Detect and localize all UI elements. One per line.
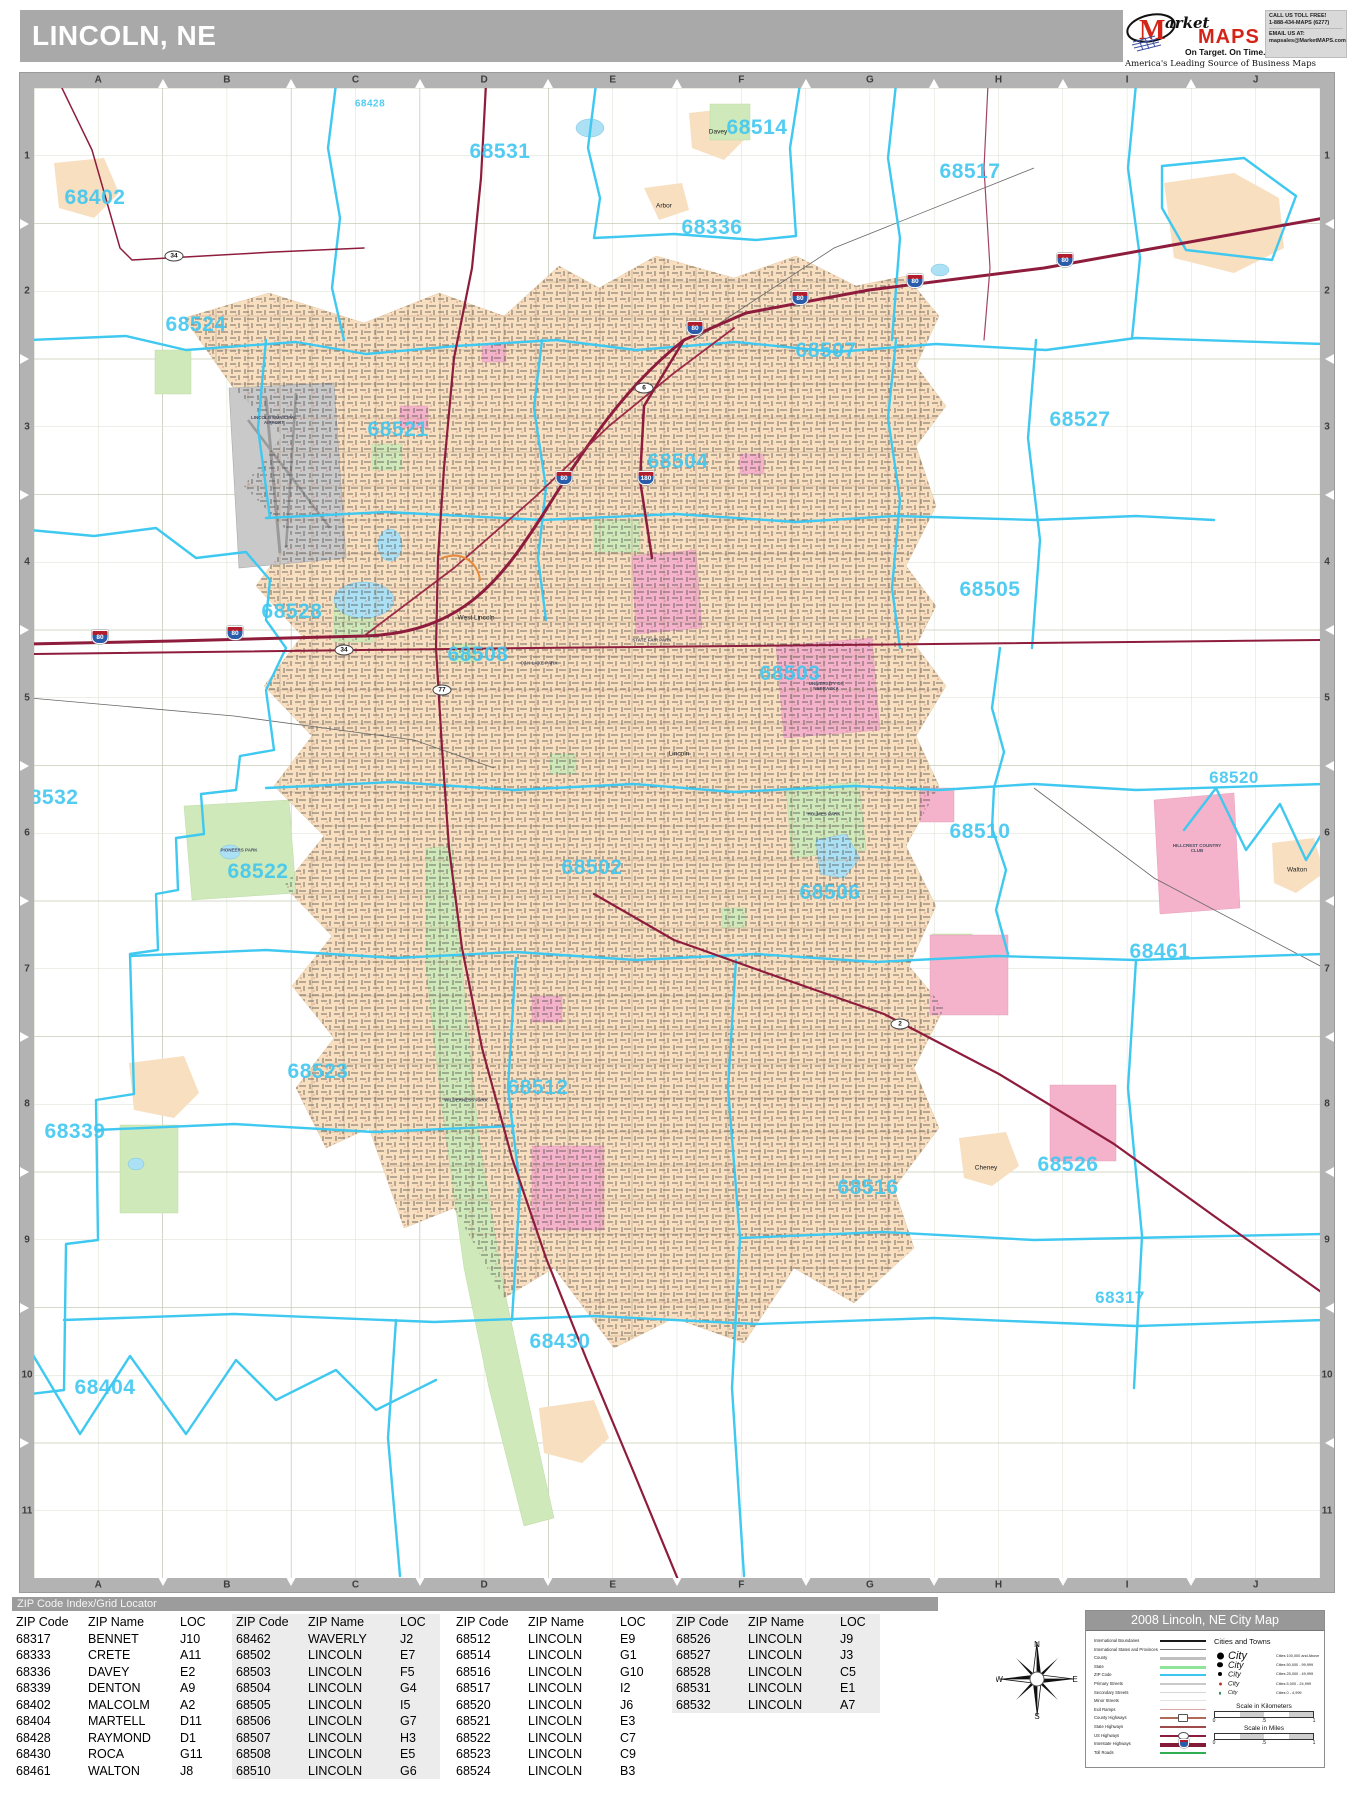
zip-index-row-68512: 68512LINCOLNE9 [452, 1631, 660, 1648]
grid-notch [1325, 1167, 1334, 1177]
city-class-row: CityCities 25,000 - 49,999 [1216, 1670, 1324, 1679]
city-range: Cities 0 - 4,999 [1276, 1691, 1302, 1695]
interstate-shield-80: 80 [792, 291, 809, 305]
town-label-davey: Davey [709, 129, 727, 136]
zip-label-68336: 68336 [682, 216, 743, 240]
route-badge-34: 34 [335, 645, 354, 656]
zip-label-68532: 68532 [34, 786, 78, 810]
zip-index-row-68506: 68506LINCOLNG7 [232, 1713, 440, 1730]
legend-item-label: State [1094, 1664, 1104, 1669]
grid-notch [286, 1577, 296, 1586]
col-header-zip-code: ZIP Code [16, 1614, 88, 1631]
town-label-walton: Walton [1287, 867, 1307, 874]
legend-item-state-highways: State Highways [1086, 1723, 1214, 1731]
zip-label-68317: 68317 [1095, 1288, 1145, 1308]
grid-notch [20, 896, 29, 906]
grid-letter-F: F [738, 75, 744, 86]
grid-letter-H: H [995, 75, 1002, 86]
zip-label-68521: 68521 [368, 418, 429, 442]
legend-item-county-highways: County Highways [1086, 1714, 1214, 1722]
city-class-row: CityCities 5,000 - 24,999 [1216, 1679, 1324, 1688]
legend-item-interstate-highways: Interstate Highways [1086, 1740, 1214, 1748]
scale-ticks: 0.51 [1214, 1718, 1314, 1724]
grid-letter-F: F [738, 1580, 744, 1591]
zip-label-68528: 68528 [262, 600, 323, 624]
zip-label-68402: 68402 [65, 186, 126, 210]
zip-label-68507: 68507 [796, 339, 857, 363]
city-class-row: CityCities 50,000 - 99,999 [1216, 1660, 1324, 1669]
legend-item-county: County [1086, 1654, 1214, 1662]
col-header-loc: LOC [620, 1614, 656, 1631]
contact-email: mapsales@MarketMAPS.com [1269, 38, 1343, 45]
marketmaps-logo: M arket MAPS On Target. On Time. America… [1125, 4, 1347, 70]
legend-item-label: US Highways [1094, 1733, 1119, 1738]
zip-label-68531: 68531 [470, 140, 531, 164]
col-header-zip-name: ZIP Name [308, 1614, 400, 1631]
grid-notch [1325, 896, 1334, 906]
grid-letter-B: B [223, 75, 230, 86]
grid-number-10: 10 [21, 1370, 32, 1381]
zip-index-group-4: ZIP CodeZIP NameLOC68526LINCOLNJ968527LI… [672, 1614, 880, 1713]
grid-letter-I: I [1126, 1580, 1129, 1591]
grid-number-5: 5 [24, 692, 30, 703]
legend-item-label: International Boundaries [1094, 1638, 1139, 1643]
zip-index-row-68520: 68520LINCOLNJ6 [452, 1697, 660, 1714]
grid-letter-C: C [352, 75, 359, 86]
zip-index-group-1: ZIP CodeZIP NameLOC68317BENNETJ1068333CR… [12, 1614, 220, 1779]
zip-label-68523: 68523 [288, 1060, 349, 1084]
legend-item-secondary-streets: Secondary Streets [1086, 1689, 1214, 1697]
grid-notch [1186, 1577, 1196, 1586]
zip-index-row-68336: 68336DAVEYE2 [12, 1664, 220, 1681]
grid-number-11: 11 [22, 1505, 33, 1516]
scale-tick: .5 [1262, 1740, 1266, 1746]
legend-line-sample [1160, 1657, 1206, 1660]
grid-notch [801, 79, 811, 88]
legend-item-minor-streets: Minor Streets [1086, 1697, 1214, 1705]
legend-item-label: Exit Ramps [1094, 1707, 1115, 1712]
zip-index-row-68532: 68532LINCOLNA7 [672, 1697, 880, 1714]
col-header-zip-name: ZIP Name [88, 1614, 180, 1631]
legend-item-label: County Highways [1094, 1715, 1127, 1720]
city-dot [1218, 1672, 1222, 1676]
route-badge-77: 77 [433, 685, 452, 696]
col-header-loc: LOC [180, 1614, 216, 1631]
zip-index-row-68402: 68402MALCOLMA2 [12, 1697, 220, 1714]
scale-tick: .5 [1262, 1718, 1266, 1724]
legend-item-toll-roads: Toll Roads [1086, 1749, 1214, 1757]
grid-notch [20, 1438, 29, 1448]
grid-notch [158, 79, 168, 88]
poi-label: STATE FAIR PARK [626, 638, 678, 643]
zip-label-68505: 68505 [960, 578, 1021, 602]
scale-title: Scale in Kilometers [1214, 1703, 1314, 1710]
interstate-shield-80: 80 [227, 626, 244, 640]
grid-notch [20, 1167, 29, 1177]
col-header-zip-code: ZIP Code [236, 1614, 308, 1631]
grid-letter-J: J [1253, 75, 1259, 86]
zip-label-68461: 68461 [1130, 940, 1191, 964]
grid-notch [672, 79, 682, 88]
legend-item-exit-ramps: Exit Ramps [1086, 1706, 1214, 1714]
grid-number-5: 5 [1324, 692, 1330, 703]
legend-item-international-boundaries: International Boundaries [1086, 1637, 1214, 1645]
poi-label: PIONEERS PARK [213, 848, 265, 853]
grid-notch [1325, 625, 1334, 635]
legend-item-label: County [1094, 1655, 1107, 1660]
zip-label-68527: 68527 [1050, 408, 1111, 432]
scale-tick: 1 [1313, 1740, 1316, 1746]
map-canvas: 6842868531685146851768402683366852468507… [34, 88, 1320, 1578]
legend-line-sample [1160, 1649, 1206, 1650]
grid-bar-bottom: ABCDEFGHIJ [20, 1577, 1334, 1592]
grid-notch [20, 761, 29, 771]
city-dot [1217, 1652, 1224, 1659]
grid-letter-E: E [609, 75, 616, 86]
interstate-shield-badge [1179, 1739, 1189, 1748]
grid-notch [1325, 490, 1334, 500]
legend-item-state: State [1086, 1663, 1214, 1671]
legend-line-sample [1160, 1709, 1206, 1710]
zip-label-68520: 68520 [1209, 768, 1259, 788]
zip-index-row-68317: 68317BENNETJ10 [12, 1631, 220, 1648]
interstate-shield-180: 180 [638, 471, 655, 485]
cities-and-towns-header: Cities and Towns [1214, 1637, 1314, 1646]
city-dot [1219, 1692, 1222, 1695]
legend-line-sample [1160, 1692, 1206, 1693]
logo-tagline: On Target. On Time. [1185, 47, 1265, 57]
grid-notch [1325, 1438, 1334, 1448]
svg-text:S: S [1034, 1712, 1039, 1720]
scale-bar [1214, 1733, 1314, 1740]
scale-tick: 1 [1313, 1718, 1316, 1724]
grid-notch [543, 79, 553, 88]
zip-label-68339: 68339 [45, 1120, 106, 1144]
grid-number-8: 8 [1324, 1099, 1330, 1110]
town-label-lincoln: Lincoln [669, 751, 690, 758]
map-label-layer: 6842868531685146851768402683366852468507… [34, 88, 1320, 1578]
legend-line-sample [1160, 1700, 1206, 1701]
zip-index-row-68504: 68504LINCOLNG4 [232, 1680, 440, 1697]
scale-tick: 0 [1213, 1740, 1216, 1746]
logo-maps-text: MAPS [1198, 26, 1260, 49]
grid-notch [20, 1032, 29, 1042]
legend-item-label: Primary Streets [1094, 1681, 1123, 1686]
grid-letter-E: E [609, 1580, 616, 1591]
zip-index-row-68428: 68428RAYMONDD1 [12, 1730, 220, 1747]
grid-bar-left: 1234567891011 [20, 73, 34, 1592]
grid-letter-I: I [1126, 75, 1129, 86]
zip-index-row-68527: 68527LINCOLNJ3 [672, 1647, 880, 1664]
grid-number-1: 1 [24, 150, 30, 161]
zip-index-row-68503: 68503LINCOLNF5 [232, 1664, 440, 1681]
legend-item-label: ZIP Code [1094, 1672, 1112, 1677]
zip-label-68504: 68504 [648, 450, 709, 474]
city-word: City [1228, 1670, 1241, 1679]
legend-item-label: State Highways [1094, 1724, 1123, 1729]
grid-number-4: 4 [1324, 557, 1330, 568]
legend-box: 2008 Lincoln, NE City Map International … [1085, 1610, 1325, 1768]
grid-number-7: 7 [1324, 963, 1330, 974]
route-badge-6: 6 [635, 383, 654, 394]
scale-kilometers: Scale in Kilometers0.51 [1214, 1703, 1314, 1724]
grid-notch [158, 1577, 168, 1586]
route-badge-34: 34 [165, 251, 184, 262]
interstate-shield-80: 80 [907, 274, 924, 288]
zip-index-row-68507: 68507LINCOLNH3 [232, 1730, 440, 1747]
city-range: Cities 5,000 - 24,999 [1276, 1682, 1311, 1686]
zip-label-68404: 68404 [75, 1376, 136, 1400]
zip-index-row-68461: 68461WALTONJ8 [12, 1763, 220, 1780]
zip-label-68524: 68524 [166, 313, 227, 337]
grid-number-8: 8 [24, 1099, 30, 1110]
grid-number-3: 3 [1324, 421, 1330, 432]
poi-label: HOLMES PARK [798, 812, 850, 817]
city-dot [1219, 1682, 1222, 1685]
grid-notch [1325, 219, 1334, 229]
grid-notch [1186, 79, 1196, 88]
scale-tick: 0 [1213, 1718, 1216, 1724]
scale-ticks: 0.51 [1214, 1740, 1314, 1746]
legend-item-international-states-and-provinces: International States and Provinces [1086, 1646, 1214, 1654]
grid-number-10: 10 [1321, 1370, 1332, 1381]
svg-text:E: E [1072, 1675, 1077, 1684]
interstate-shield-80: 80 [687, 321, 704, 335]
svg-text:W: W [996, 1675, 1003, 1684]
grid-number-6: 6 [1324, 828, 1330, 839]
city-word: City [1228, 1680, 1239, 1687]
poi-label: UNIVERSITY OF NEBRASKA [800, 681, 852, 691]
col-header-zip-name: ZIP Name [528, 1614, 620, 1631]
interstate-shield-80: 80 [1057, 253, 1074, 267]
grid-notch [1058, 1577, 1068, 1586]
grid-number-2: 2 [1324, 286, 1330, 297]
grid-letter-J: J [1253, 1580, 1259, 1591]
grid-notch [929, 79, 939, 88]
zip-label-68508: 68508 [448, 643, 509, 667]
legend-title: 2008 Lincoln, NE City Map [1086, 1611, 1324, 1631]
grid-bar-right: 1234567891011 [1320, 73, 1334, 1592]
zip-label-68514: 68514 [727, 116, 788, 140]
legend-line-sample [1160, 1752, 1206, 1755]
town-label-west-lincoln: West Lincoln [457, 615, 494, 622]
grid-number-9: 9 [24, 1234, 30, 1245]
city-range: Cities 100,000 and Above [1276, 1654, 1319, 1658]
legend-item-us-highways: US Highways [1086, 1732, 1214, 1740]
legend-item-label: International States and Provinces [1094, 1647, 1158, 1652]
logo-subtitle: America's Leading Source of Business Map… [1125, 59, 1316, 69]
grid-number-2: 2 [24, 286, 30, 297]
grid-letter-G: G [866, 1580, 874, 1591]
grid-number-11: 11 [1322, 1505, 1333, 1516]
zip-index-row-68430: 68430ROCAG11 [12, 1746, 220, 1763]
zip-index-row-68462: 68462WAVERLYJ2 [232, 1631, 440, 1648]
city-dot [1217, 1662, 1223, 1668]
zip-index-row-68333: 68333CRETEA11 [12, 1647, 220, 1664]
scale-bar [1214, 1711, 1314, 1718]
city-range: Cities 25,000 - 49,999 [1276, 1672, 1313, 1676]
poi-label: OAK LAKE PARK [513, 661, 565, 666]
grid-notch [1325, 354, 1334, 364]
county-highway-badge [1178, 1714, 1188, 1722]
city-range: Cities 50,000 - 99,999 [1276, 1663, 1313, 1667]
grid-letter-C: C [352, 1580, 359, 1591]
grid-letter-H: H [995, 1580, 1002, 1591]
grid-letter-D: D [480, 1580, 487, 1591]
legend-line-sample [1160, 1666, 1206, 1670]
scale-title: Scale in Miles [1214, 1725, 1314, 1732]
grid-notch [672, 1577, 682, 1586]
grid-notch [1058, 79, 1068, 88]
zip-index-row-68510: 68510LINCOLNG6 [232, 1763, 440, 1780]
grid-notch [286, 79, 296, 88]
grid-notch [20, 219, 29, 229]
legend-item-primary-streets: Primary Streets [1086, 1680, 1214, 1688]
scale-seg [1289, 1712, 1314, 1717]
zip-label-68428: 68428 [355, 99, 385, 110]
zip-label-68512: 68512 [508, 1076, 569, 1100]
grid-notch [929, 1577, 939, 1586]
grid-number-7: 7 [24, 963, 30, 974]
zip-index-row-68526: 68526LINCOLNJ9 [672, 1631, 880, 1648]
city-word: City [1228, 1690, 1237, 1696]
map-frame: ABCDEFGHIJ ABCDEFGHIJ 1234567891011 1234… [20, 73, 1334, 1592]
zip-index-row-68505: 68505LINCOLNI5 [232, 1697, 440, 1714]
zip-index-row-68531: 68531LINCOLNE1 [672, 1680, 880, 1697]
zip-index-row-68524: 68524LINCOLNB3 [452, 1763, 660, 1780]
legend-line-sample [1160, 1640, 1206, 1642]
grid-number-3: 3 [24, 421, 30, 432]
city-class-row: CityCities 100,000 and Above [1216, 1651, 1324, 1660]
poi-label: LINCOLN MUNICIPAL AIRPORT [248, 415, 300, 425]
legend-item-label: Secondary Streets [1094, 1690, 1128, 1695]
zip-index-row-68508: 68508LINCOLNE5 [232, 1746, 440, 1763]
grid-number-1: 1 [1324, 150, 1330, 161]
grid-number-9: 9 [1324, 1234, 1330, 1245]
grid-notch [20, 1303, 29, 1313]
col-header-zip-code: ZIP Code [676, 1614, 748, 1631]
legend-item-label: Toll Roads [1094, 1750, 1114, 1755]
legend-item-label: Minor Streets [1094, 1698, 1119, 1703]
grid-letter-A: A [95, 1580, 102, 1591]
zip-label-68430: 68430 [530, 1330, 591, 1354]
grid-notch [543, 1577, 553, 1586]
poi-label: WILDERNESS PARK [440, 1098, 492, 1103]
zip-index-row-68339: 68339DENTONA9 [12, 1680, 220, 1697]
compass-rose-icon: N S W E [996, 1638, 1078, 1720]
interstate-shield-80: 80 [92, 630, 109, 644]
grid-notch [415, 79, 425, 88]
col-header-loc: LOC [840, 1614, 876, 1631]
zip-label-68517: 68517 [940, 160, 1001, 184]
page: { "page": { "title": "LINCOLN, NE" }, "l… [0, 0, 1350, 1800]
zip-label-68506: 68506 [800, 881, 861, 905]
zip-index-row-68516: 68516LINCOLNG10 [452, 1664, 660, 1681]
town-label-cheney: Cheney [975, 1165, 997, 1172]
scale-seg [1289, 1734, 1314, 1739]
zip-index-group-3: ZIP CodeZIP NameLOC68512LINCOLNE968514LI… [452, 1614, 660, 1779]
zip-label-68526: 68526 [1038, 1153, 1099, 1177]
zip-index-row-68528: 68528LINCOLNC5 [672, 1664, 880, 1681]
town-label-arbor: Arbor [656, 203, 672, 210]
grid-notch [1325, 761, 1334, 771]
zip-index-group-2: ZIP CodeZIP NameLOC68462WAVERLYJ268502LI… [232, 1614, 440, 1779]
zip-label-68516: 68516 [838, 1176, 899, 1200]
legend-line-sample [1160, 1726, 1206, 1728]
zip-label-68522: 68522 [228, 860, 289, 884]
col-header-loc: LOC [400, 1614, 436, 1631]
grid-bar-top: ABCDEFGHIJ [20, 73, 1334, 88]
title-bar: LINCOLN, NE [20, 10, 1123, 62]
grid-letter-A: A [95, 75, 102, 86]
grid-notch [20, 490, 29, 500]
index-header: ZIP Code Index/Grid Locator [12, 1597, 938, 1611]
grid-notch [1325, 1303, 1334, 1313]
zip-index-row-68514: 68514LINCOLNG1 [452, 1647, 660, 1664]
zip-index-row-68521: 68521LINCOLNE3 [452, 1713, 660, 1730]
legend-item-zip-code: ZIP Code [1086, 1671, 1214, 1679]
scale-miles: Scale in Miles0.51 [1214, 1725, 1314, 1746]
zip-index-row-68502: 68502LINCOLNE7 [232, 1647, 440, 1664]
col-header-zip-code: ZIP Code [456, 1614, 528, 1631]
page-title: LINCOLN, NE [20, 10, 1123, 62]
legend-line-sample [1160, 1683, 1206, 1685]
legend-line-sample [1160, 1674, 1206, 1676]
grid-notch [801, 1577, 811, 1586]
interstate-shield-80: 80 [556, 471, 573, 485]
city-class-row: CityCities 0 - 4,999 [1216, 1689, 1324, 1698]
zip-label-68502: 68502 [562, 856, 623, 880]
poi-label: HILLCREST COUNTRY CLUB [1171, 843, 1223, 853]
zip-index-row-68517: 68517LINCOLNI2 [452, 1680, 660, 1697]
grid-letter-B: B [223, 1580, 230, 1591]
grid-notch [1325, 1032, 1334, 1042]
grid-notch [20, 625, 29, 635]
zip-index-row-68522: 68522LINCOLNC7 [452, 1730, 660, 1747]
zip-index-row-68523: 68523LINCOLNC9 [452, 1746, 660, 1763]
legend-item-label: Interstate Highways [1094, 1741, 1131, 1746]
col-header-zip-name: ZIP Name [748, 1614, 840, 1631]
svg-text:N: N [1034, 1640, 1040, 1649]
grid-letter-G: G [866, 75, 874, 86]
zip-index-row-68404: 68404MARTELLD11 [12, 1713, 220, 1730]
scale-seg [1240, 1712, 1265, 1717]
route-badge-2: 2 [891, 1019, 910, 1030]
contact-box: CALL US TOLL FREE! 1-888-434-MAPS (6277)… [1265, 10, 1347, 58]
scale-seg [1240, 1734, 1265, 1739]
grid-number-6: 6 [24, 828, 30, 839]
zip-label-68510: 68510 [950, 820, 1011, 844]
grid-notch [20, 354, 29, 364]
contact-phone: 1-888-434-MAPS (6277) [1269, 20, 1343, 27]
grid-number-4: 4 [24, 557, 30, 568]
city-word: City [1228, 1660, 1244, 1670]
grid-notch [415, 1577, 425, 1586]
grid-letter-D: D [480, 75, 487, 86]
